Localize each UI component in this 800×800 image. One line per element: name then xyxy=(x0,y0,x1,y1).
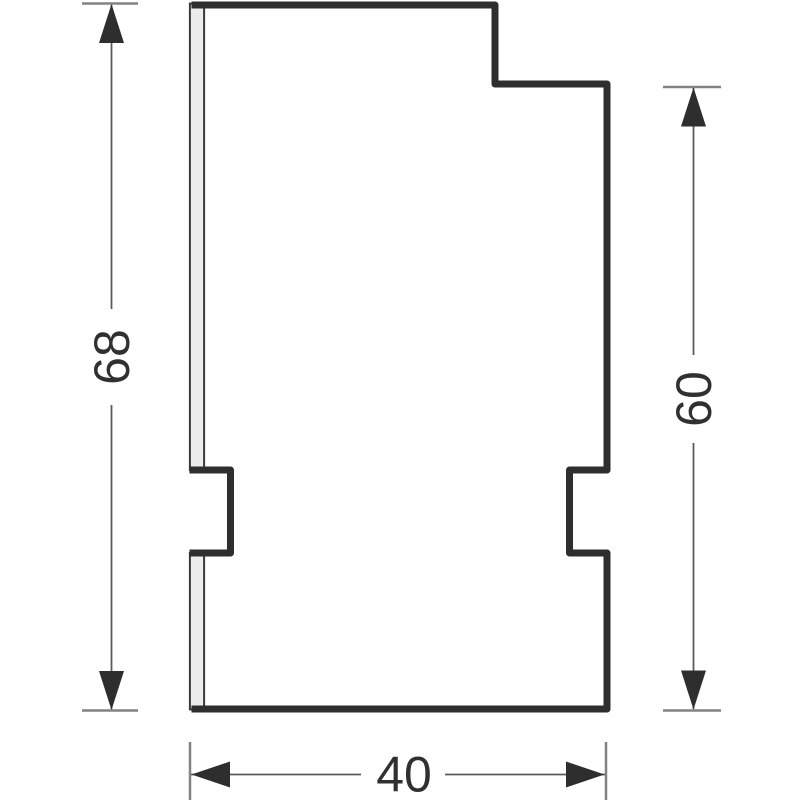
dimension-bottom-width: 40 xyxy=(190,742,606,800)
left-foil-strip-lower xyxy=(190,553,204,709)
arrow-down-icon xyxy=(681,671,706,710)
dimension-label-left-height: 68 xyxy=(84,329,140,385)
arrow-left-icon xyxy=(192,762,231,788)
dimension-left-height: 68 xyxy=(82,4,140,711)
dimension-label-bottom-width: 40 xyxy=(376,747,432,800)
left-foil-strip-upper xyxy=(190,4,204,470)
profile-drawing-svg: 68 60 40 xyxy=(0,0,800,800)
dimension-label-right-height: 60 xyxy=(666,371,722,427)
arrow-right-icon xyxy=(566,762,605,788)
arrow-up-icon xyxy=(681,88,706,127)
arrow-up-icon xyxy=(99,4,124,43)
technical-drawing-canvas: 68 60 40 xyxy=(0,0,800,800)
profile-part xyxy=(190,4,608,710)
part-body-fill xyxy=(192,5,608,709)
dimension-right-height: 60 xyxy=(663,87,722,711)
arrow-down-icon xyxy=(99,671,124,710)
